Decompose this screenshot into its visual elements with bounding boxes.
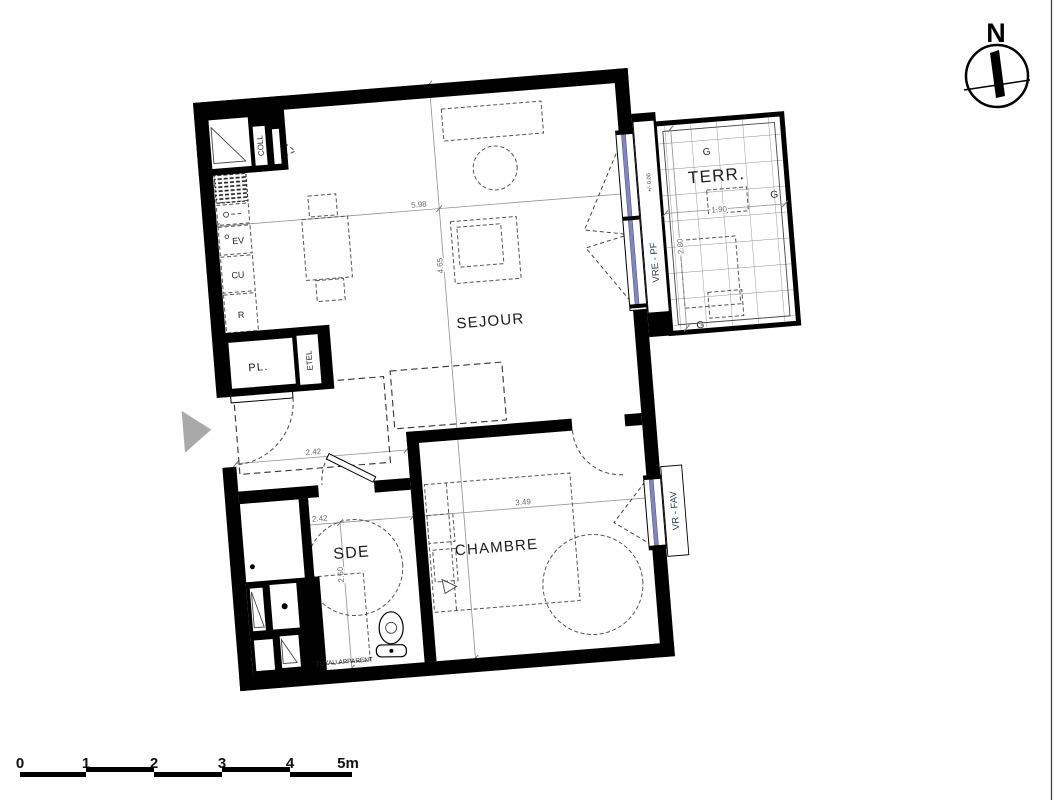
scale-bar: 0 1 2 3 4 5m: [16, 755, 359, 777]
label-coll: COLL: [255, 134, 266, 156]
scale-segment: [20, 772, 86, 777]
dim-entree-width: 2.42: [305, 447, 322, 457]
duct-box: [253, 638, 276, 672]
scale-segment: [222, 767, 290, 772]
dim-sde-width: 2.42: [312, 514, 329, 524]
label-evier: EV: [232, 235, 245, 246]
railing-mark-g-top: G: [702, 147, 711, 159]
compass-needle-icon: [990, 50, 1005, 98]
railing-mark-g-right: G: [770, 189, 779, 201]
label-cuisson: CU: [231, 269, 245, 280]
scale-tick-5: 5m: [337, 755, 359, 772]
scale-segment: [290, 772, 352, 777]
scale-segment: [86, 767, 154, 772]
scale-segment: [154, 772, 222, 777]
floor-plan: 1.90 2.80 TERR. G G G 5.98 4.65 2.42 2.4…: [157, 53, 825, 694]
railing-mark-g-bottom: G: [696, 320, 705, 332]
wall-chambre-top-stub: [624, 413, 642, 426]
room-label-placard: PL.: [248, 361, 269, 375]
dim-terrace-depth: 2.80: [675, 238, 685, 255]
entrance-arrow-icon: [182, 409, 213, 453]
dim-terrace-width: 1.90: [711, 204, 728, 214]
dim-chambre-width: 3.49: [515, 497, 532, 507]
washing-machine: [214, 171, 248, 203]
dim-sejour-depth: 4.65: [435, 257, 445, 274]
north-label: N: [986, 18, 1006, 48]
north-compass: N: [964, 18, 1030, 107]
floor-plan-sheet: 1.90 2.80 TERR. G G G 5.98 4.65 2.42 2.4…: [0, 0, 1055, 800]
label-etel: ETEL: [304, 350, 315, 371]
scale-tick-0: 0: [16, 755, 24, 772]
dim-sejour-width: 5.98: [411, 200, 428, 210]
room-label-sde: SDE: [333, 543, 371, 563]
washbasin-counter: [239, 499, 305, 584]
